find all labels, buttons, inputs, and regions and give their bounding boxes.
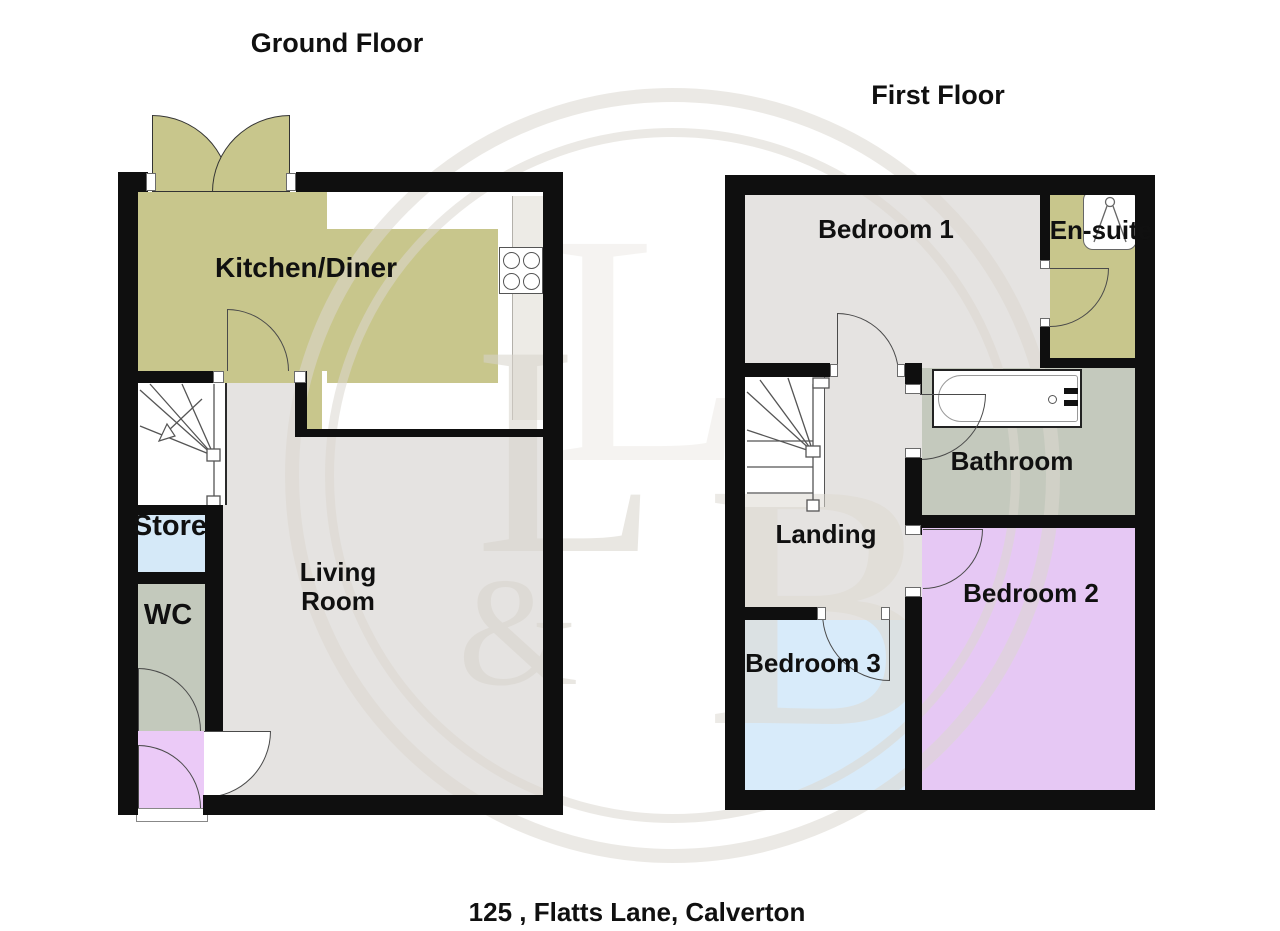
bathroom-door-jamb	[905, 448, 921, 458]
bedroom3-door-jamb	[881, 607, 890, 620]
ground-floor-title: Ground Floor	[212, 28, 462, 59]
bathroom-door-jamb	[905, 384, 921, 394]
bedroom2-door-jamb	[905, 587, 921, 597]
bedroom1-door-jamb	[830, 364, 838, 377]
bedroom2-door-jamb	[905, 525, 921, 535]
wc-label: WC	[128, 599, 208, 632]
ground-wall-bottom	[203, 795, 563, 815]
ground-wall-top-right	[296, 172, 563, 192]
stairs-ground-lines	[140, 384, 220, 507]
bedroom3-door-jamb	[817, 607, 826, 620]
kitchen-living-thin-wall	[307, 429, 543, 437]
stairs-first-lines	[747, 378, 829, 511]
bedroom2-label: Bedroom 2	[931, 578, 1131, 609]
living-room-label: Living Room	[277, 558, 399, 616]
landing-vert-wall-c	[905, 597, 922, 790]
first-wall-top	[725, 175, 1155, 195]
bathroom-bottom-wall	[905, 515, 1135, 528]
ground-wall-right	[543, 172, 563, 815]
kitchen-door-jamb	[213, 371, 224, 383]
store-label: Store	[120, 510, 220, 543]
bathroom-label: Bathroom	[932, 446, 1092, 477]
landing-label: Landing	[746, 519, 906, 550]
bedroom3-top-wall	[745, 607, 817, 620]
address-caption: 125 , Flatts Lane, Calverton	[387, 897, 887, 928]
kitchen-diner-label: Kitchen/Diner	[186, 252, 426, 284]
ground-wall-left	[118, 172, 138, 815]
bedroom1-label: Bedroom 1	[786, 214, 986, 245]
kitchen-stairs-wall	[138, 371, 223, 383]
first-wall-bottom	[725, 790, 1155, 810]
ensuite-bottom-wall	[1040, 358, 1135, 368]
ensuite-door-jamb	[1040, 318, 1050, 327]
kitchen-door-jamb	[294, 371, 306, 383]
patio-door-jamb	[286, 173, 296, 191]
store-wc-wall	[138, 572, 205, 584]
bedroom3-label: Bedroom 3	[713, 648, 913, 679]
first-floor-title: First Floor	[813, 80, 1063, 111]
ensuite-door-jamb	[1040, 260, 1050, 269]
first-wall-right	[1135, 175, 1155, 810]
first-wall-left	[725, 175, 745, 810]
bedroom1-bottom-wall	[745, 363, 830, 377]
bedroom1-door-jamb	[897, 364, 905, 377]
ensuite-label: En-suite	[1036, 215, 1166, 246]
patio-door-jamb	[146, 173, 156, 191]
floorplan-page: L L & B	[0, 0, 1280, 931]
